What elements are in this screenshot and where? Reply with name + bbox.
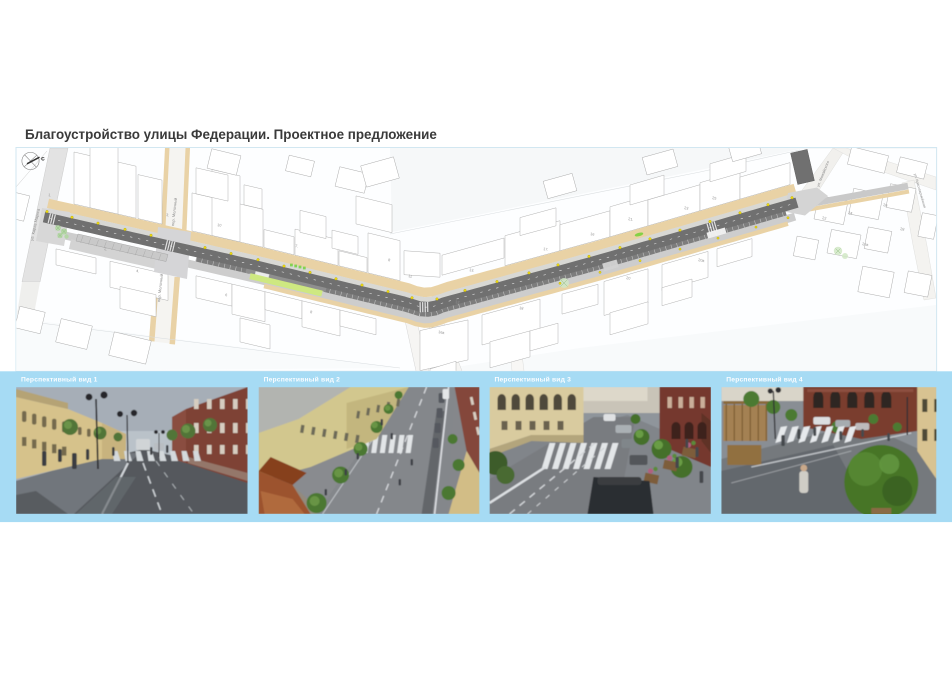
svg-text:23: 23 — [684, 206, 689, 211]
svg-text:Перспективный вид 3: Перспективный вид 3 — [495, 376, 572, 384]
svg-text:Перспективный вид 1: Перспективный вид 1 — [21, 376, 98, 384]
svg-text:11: 11 — [408, 274, 413, 279]
svg-text:18: 18 — [519, 306, 524, 311]
svg-text:Перспективный вид 4: Перспективный вид 4 — [726, 376, 803, 384]
svg-text:25: 25 — [712, 196, 717, 201]
svg-text:10: 10 — [217, 223, 222, 228]
svg-text:Перспективный вид 2: Перспективный вид 2 — [264, 376, 341, 384]
svg-text:16: 16 — [590, 232, 595, 237]
svg-text:с: с — [41, 156, 45, 163]
svg-text:24: 24 — [848, 211, 853, 216]
svg-text:26: 26 — [883, 203, 888, 208]
svg-text:22: 22 — [822, 216, 827, 221]
svg-text:20: 20 — [626, 276, 631, 281]
svg-text:28: 28 — [900, 227, 905, 232]
